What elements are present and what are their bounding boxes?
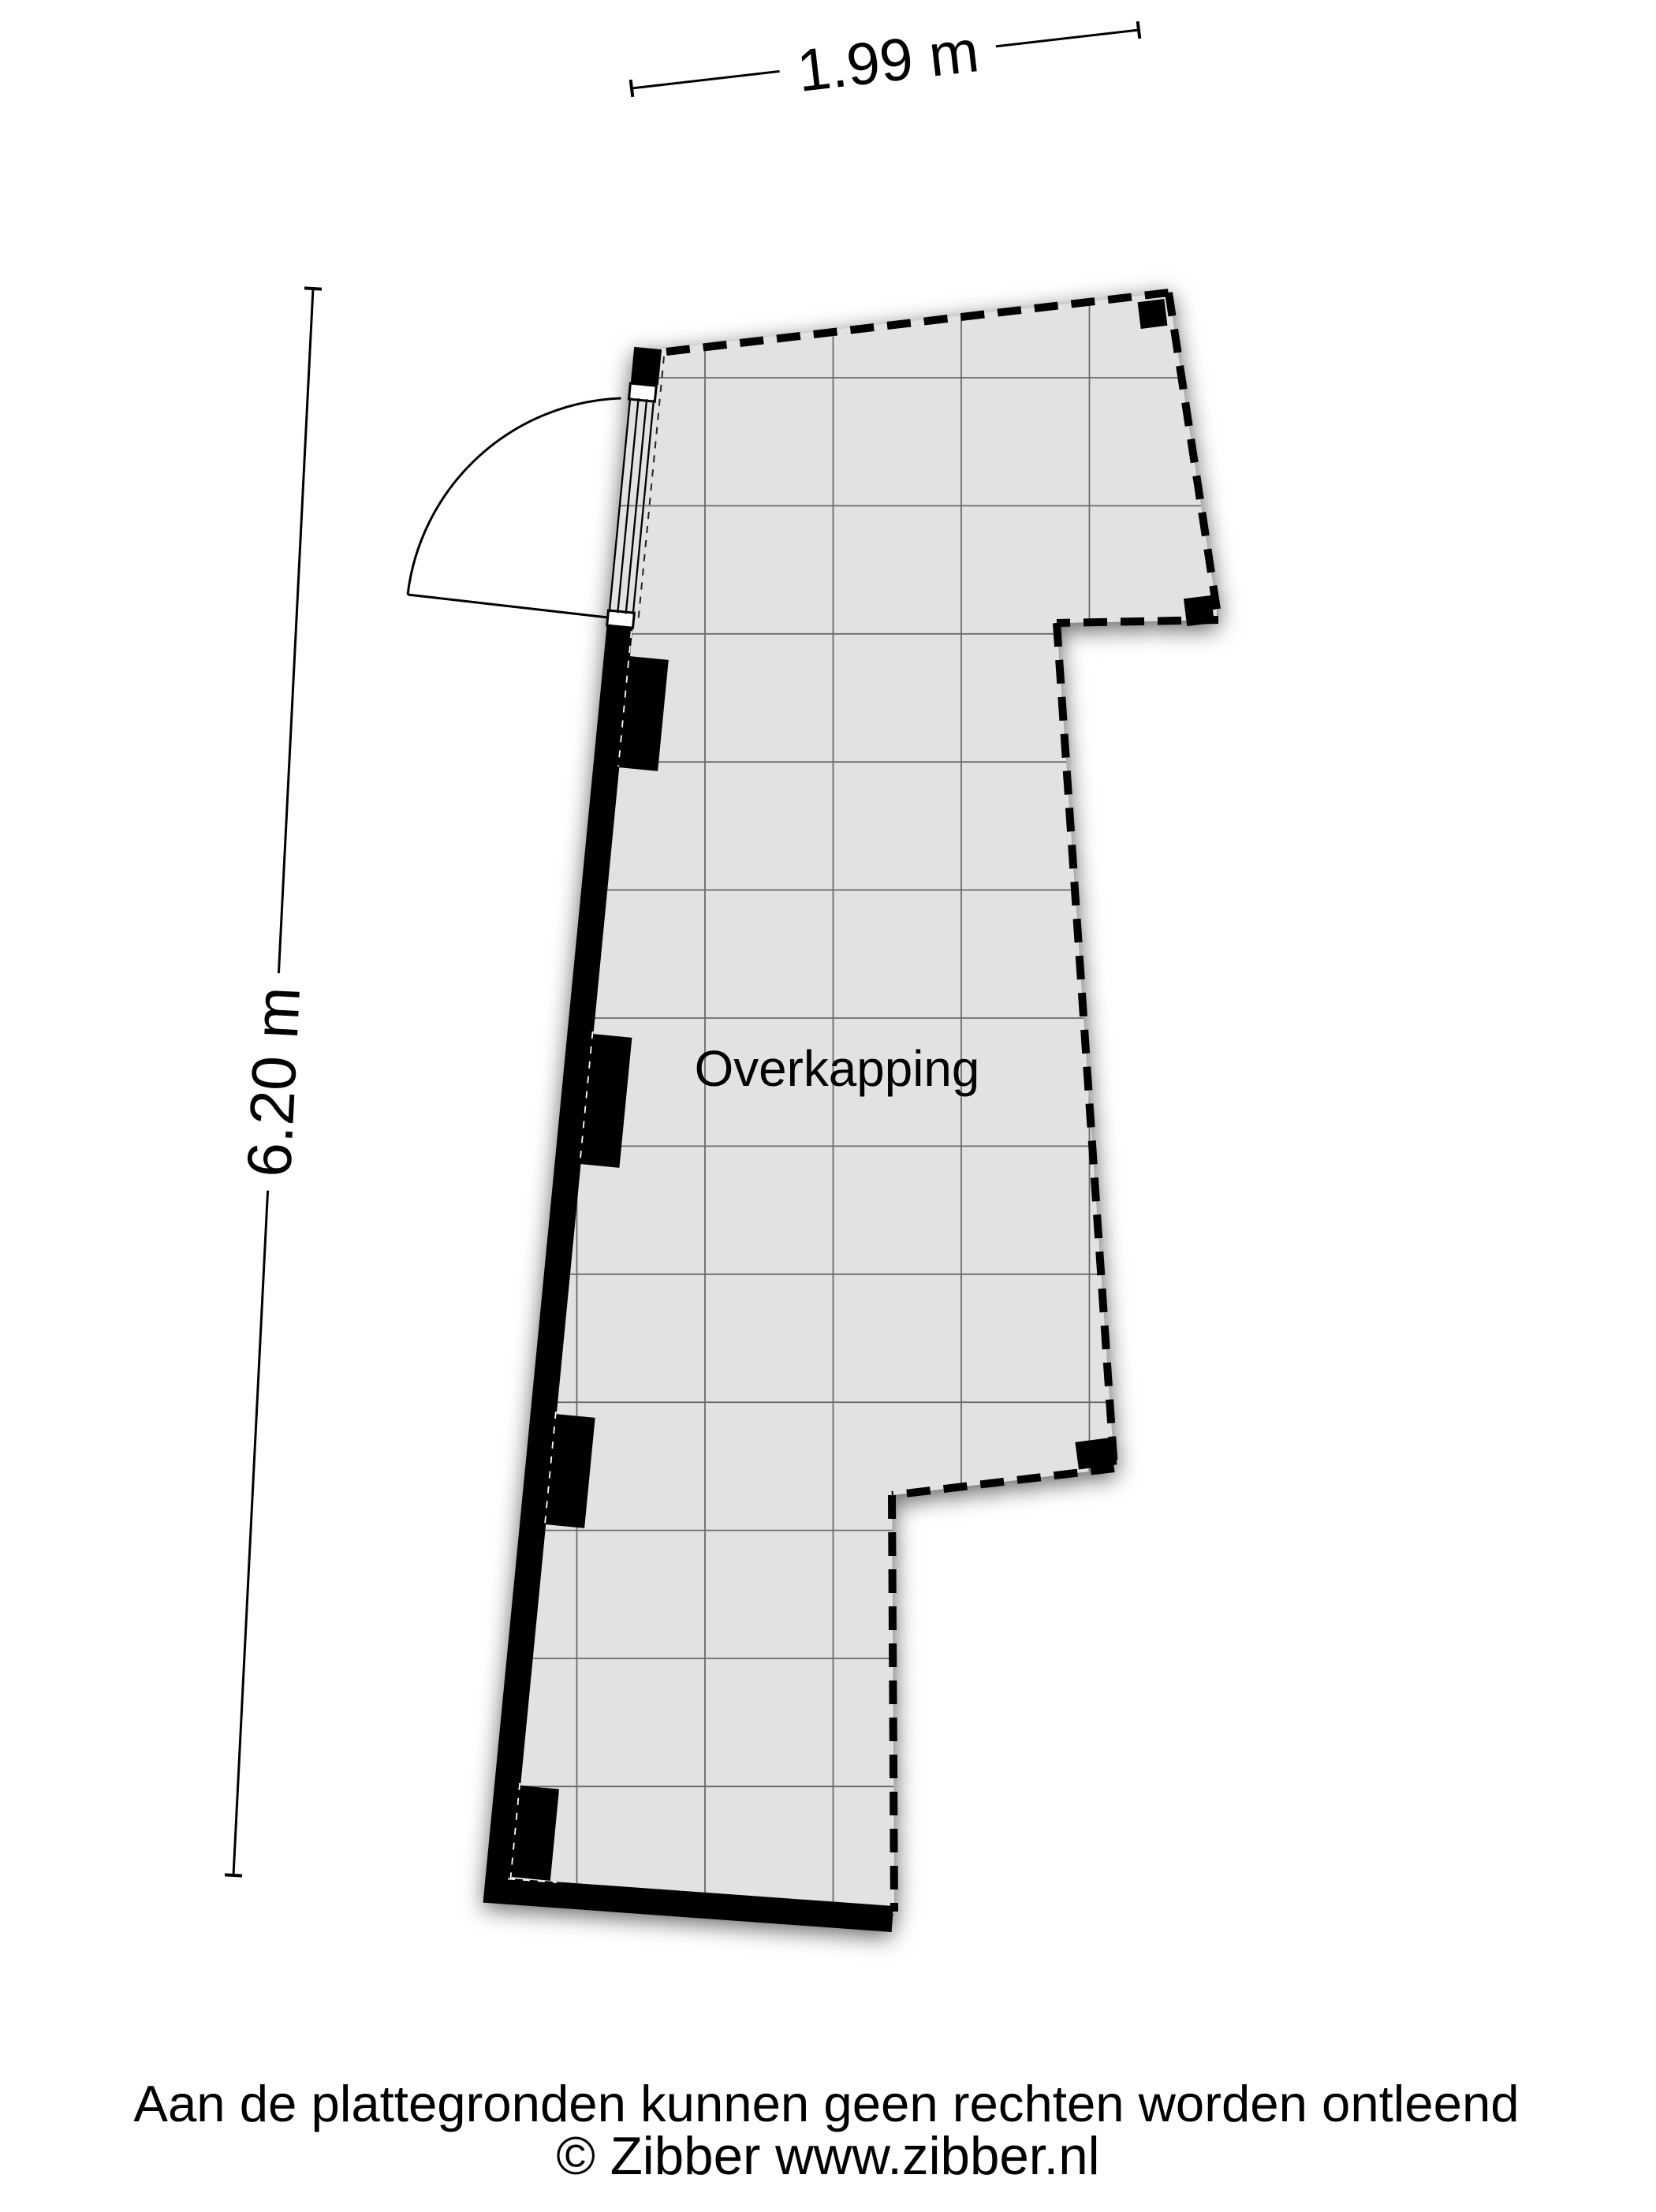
svg-text:Aan de plattegronden kunnen ge: Aan de plattegronden kunnen geen rechten… xyxy=(133,2075,1519,2132)
svg-text:© Zibber www.zibber.nl: © Zibber www.zibber.nl xyxy=(556,2127,1099,2186)
svg-text:Overkapping: Overkapping xyxy=(695,1040,980,1097)
svg-text:6.20 m: 6.20 m xyxy=(233,985,313,1179)
